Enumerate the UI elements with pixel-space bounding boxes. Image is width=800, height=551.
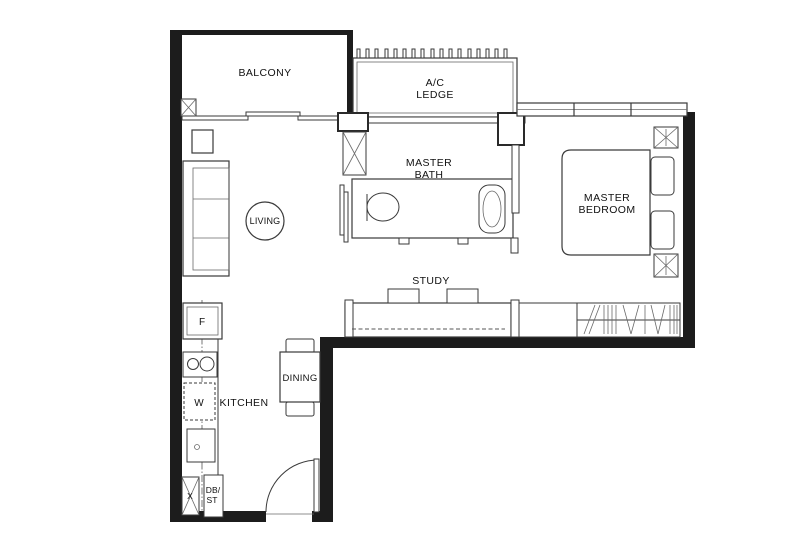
wall-left [170,30,182,522]
master-bath-room: MASTER BATH [340,132,519,253]
master-bath-label-1: MASTER [406,157,452,169]
db-st-label-2: ST [206,495,217,505]
desk-chair-icon [447,289,478,303]
balcony-column-icon [181,99,196,116]
bath-pocket-door [344,192,348,242]
bathtub-icon [479,185,505,233]
door-leaf [314,459,319,512]
door-swing-arc [266,460,318,512]
store-box-icon: X [182,477,199,515]
bath-pocket-door [340,185,344,235]
wardrobe-icon [577,303,680,337]
bath-bedroom-wall [512,145,519,213]
entry-door [266,459,319,514]
living-label: LIVING [250,216,281,226]
wall-balcony-right [347,33,353,117]
pillow-icon [651,211,674,249]
study-desk [345,303,511,337]
sofa-icon [183,161,229,276]
bedroom-window [517,103,687,116]
bedside-table-icon [654,254,678,277]
master-bedroom-label-2: BEDROOM [578,204,635,216]
balcony-label: BALCONY [239,67,292,79]
hob-icon [183,352,217,377]
shower-icon [343,132,366,175]
bedroom-door-jamb [511,238,518,253]
wall-bottom-door-stub [312,511,333,522]
study-area: STUDY [345,275,577,337]
wall-top-balcony [170,30,353,35]
washer-icon: W [184,383,215,420]
wall-right [683,112,695,348]
counter-leg [399,238,409,244]
sliding-door-panel [246,112,300,116]
ac-ledge-label-2: LEDGE [416,89,454,101]
desk-chair-icon [388,289,419,303]
wall-upper-bottom [320,337,695,348]
bedside-table-icon [654,127,678,148]
floor-plan: BALCONY A/C LEDGE [0,0,800,551]
desk-divider-panel [511,300,519,337]
counter-leg [458,238,468,244]
fridge-icon: F [183,303,222,339]
study-label: STUDY [412,275,450,287]
louver-ticks-icon [357,49,507,58]
master-bedroom-room: MASTER BEDROOM [562,127,680,337]
toilet-icon [367,193,399,221]
dining-chair-icon [286,339,314,353]
column-post [498,113,524,145]
kitchen-area: KITCHEN F W X [182,300,268,517]
side-table-icon [192,130,213,153]
db-st-cabinet: DB/ ST [204,475,223,517]
balcony-room: BALCONY [181,67,348,120]
upper-structure [338,103,687,145]
desk-counter-right [519,303,577,337]
db-st-label-1: DB/ [206,485,221,495]
sliding-door-panel [182,116,248,120]
pillow-icon [651,157,674,195]
master-bedroom-label-1: MASTER [584,192,630,204]
ac-ledge: A/C LEDGE [353,49,517,117]
living-room: LIVING [183,130,284,276]
ac-ledge-label-1: A/C [426,77,445,89]
wall-entry-right [320,344,333,522]
dining-chair-icon [286,402,314,416]
bath-counter [352,179,513,238]
fridge-label: F [199,317,205,328]
sink-icon [187,429,215,462]
dining-area: DINING [280,339,320,416]
floor-plan-drawing: BALCONY A/C LEDGE [0,0,800,551]
washer-label: W [194,398,204,409]
column-post [338,113,368,131]
desk-end-panel [345,300,353,337]
kitchen-label: KITCHEN [220,397,269,409]
dining-label: DINING [282,373,317,384]
store-label: X [187,491,193,501]
